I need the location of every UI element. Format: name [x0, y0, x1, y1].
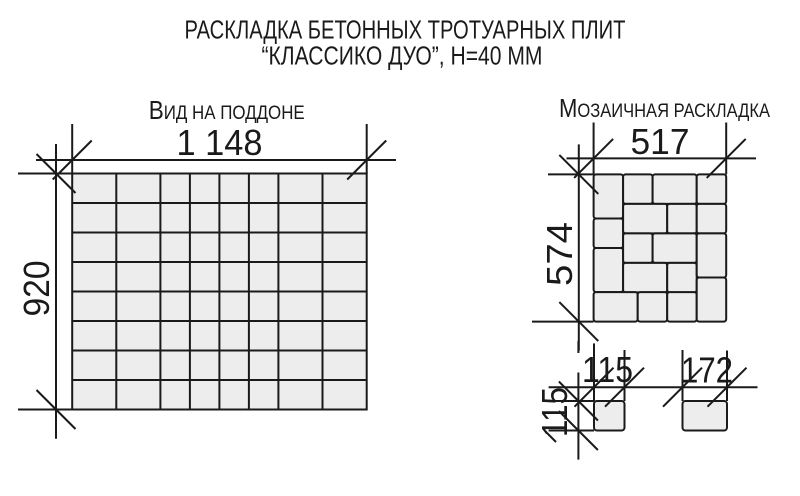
svg-text:115: 115 — [534, 387, 575, 437]
svg-text:“КЛАССИКО ДУО”, Н=40 ММ: “КЛАССИКО ДУО”, Н=40 ММ — [262, 40, 543, 70]
svg-text:172: 172 — [681, 350, 733, 391]
svg-text:517: 517 — [631, 121, 690, 162]
svg-text:115: 115 — [582, 349, 633, 390]
svg-text:574: 574 — [539, 222, 580, 286]
svg-text:1 148: 1 148 — [177, 122, 263, 163]
svg-text:920: 920 — [16, 261, 57, 317]
